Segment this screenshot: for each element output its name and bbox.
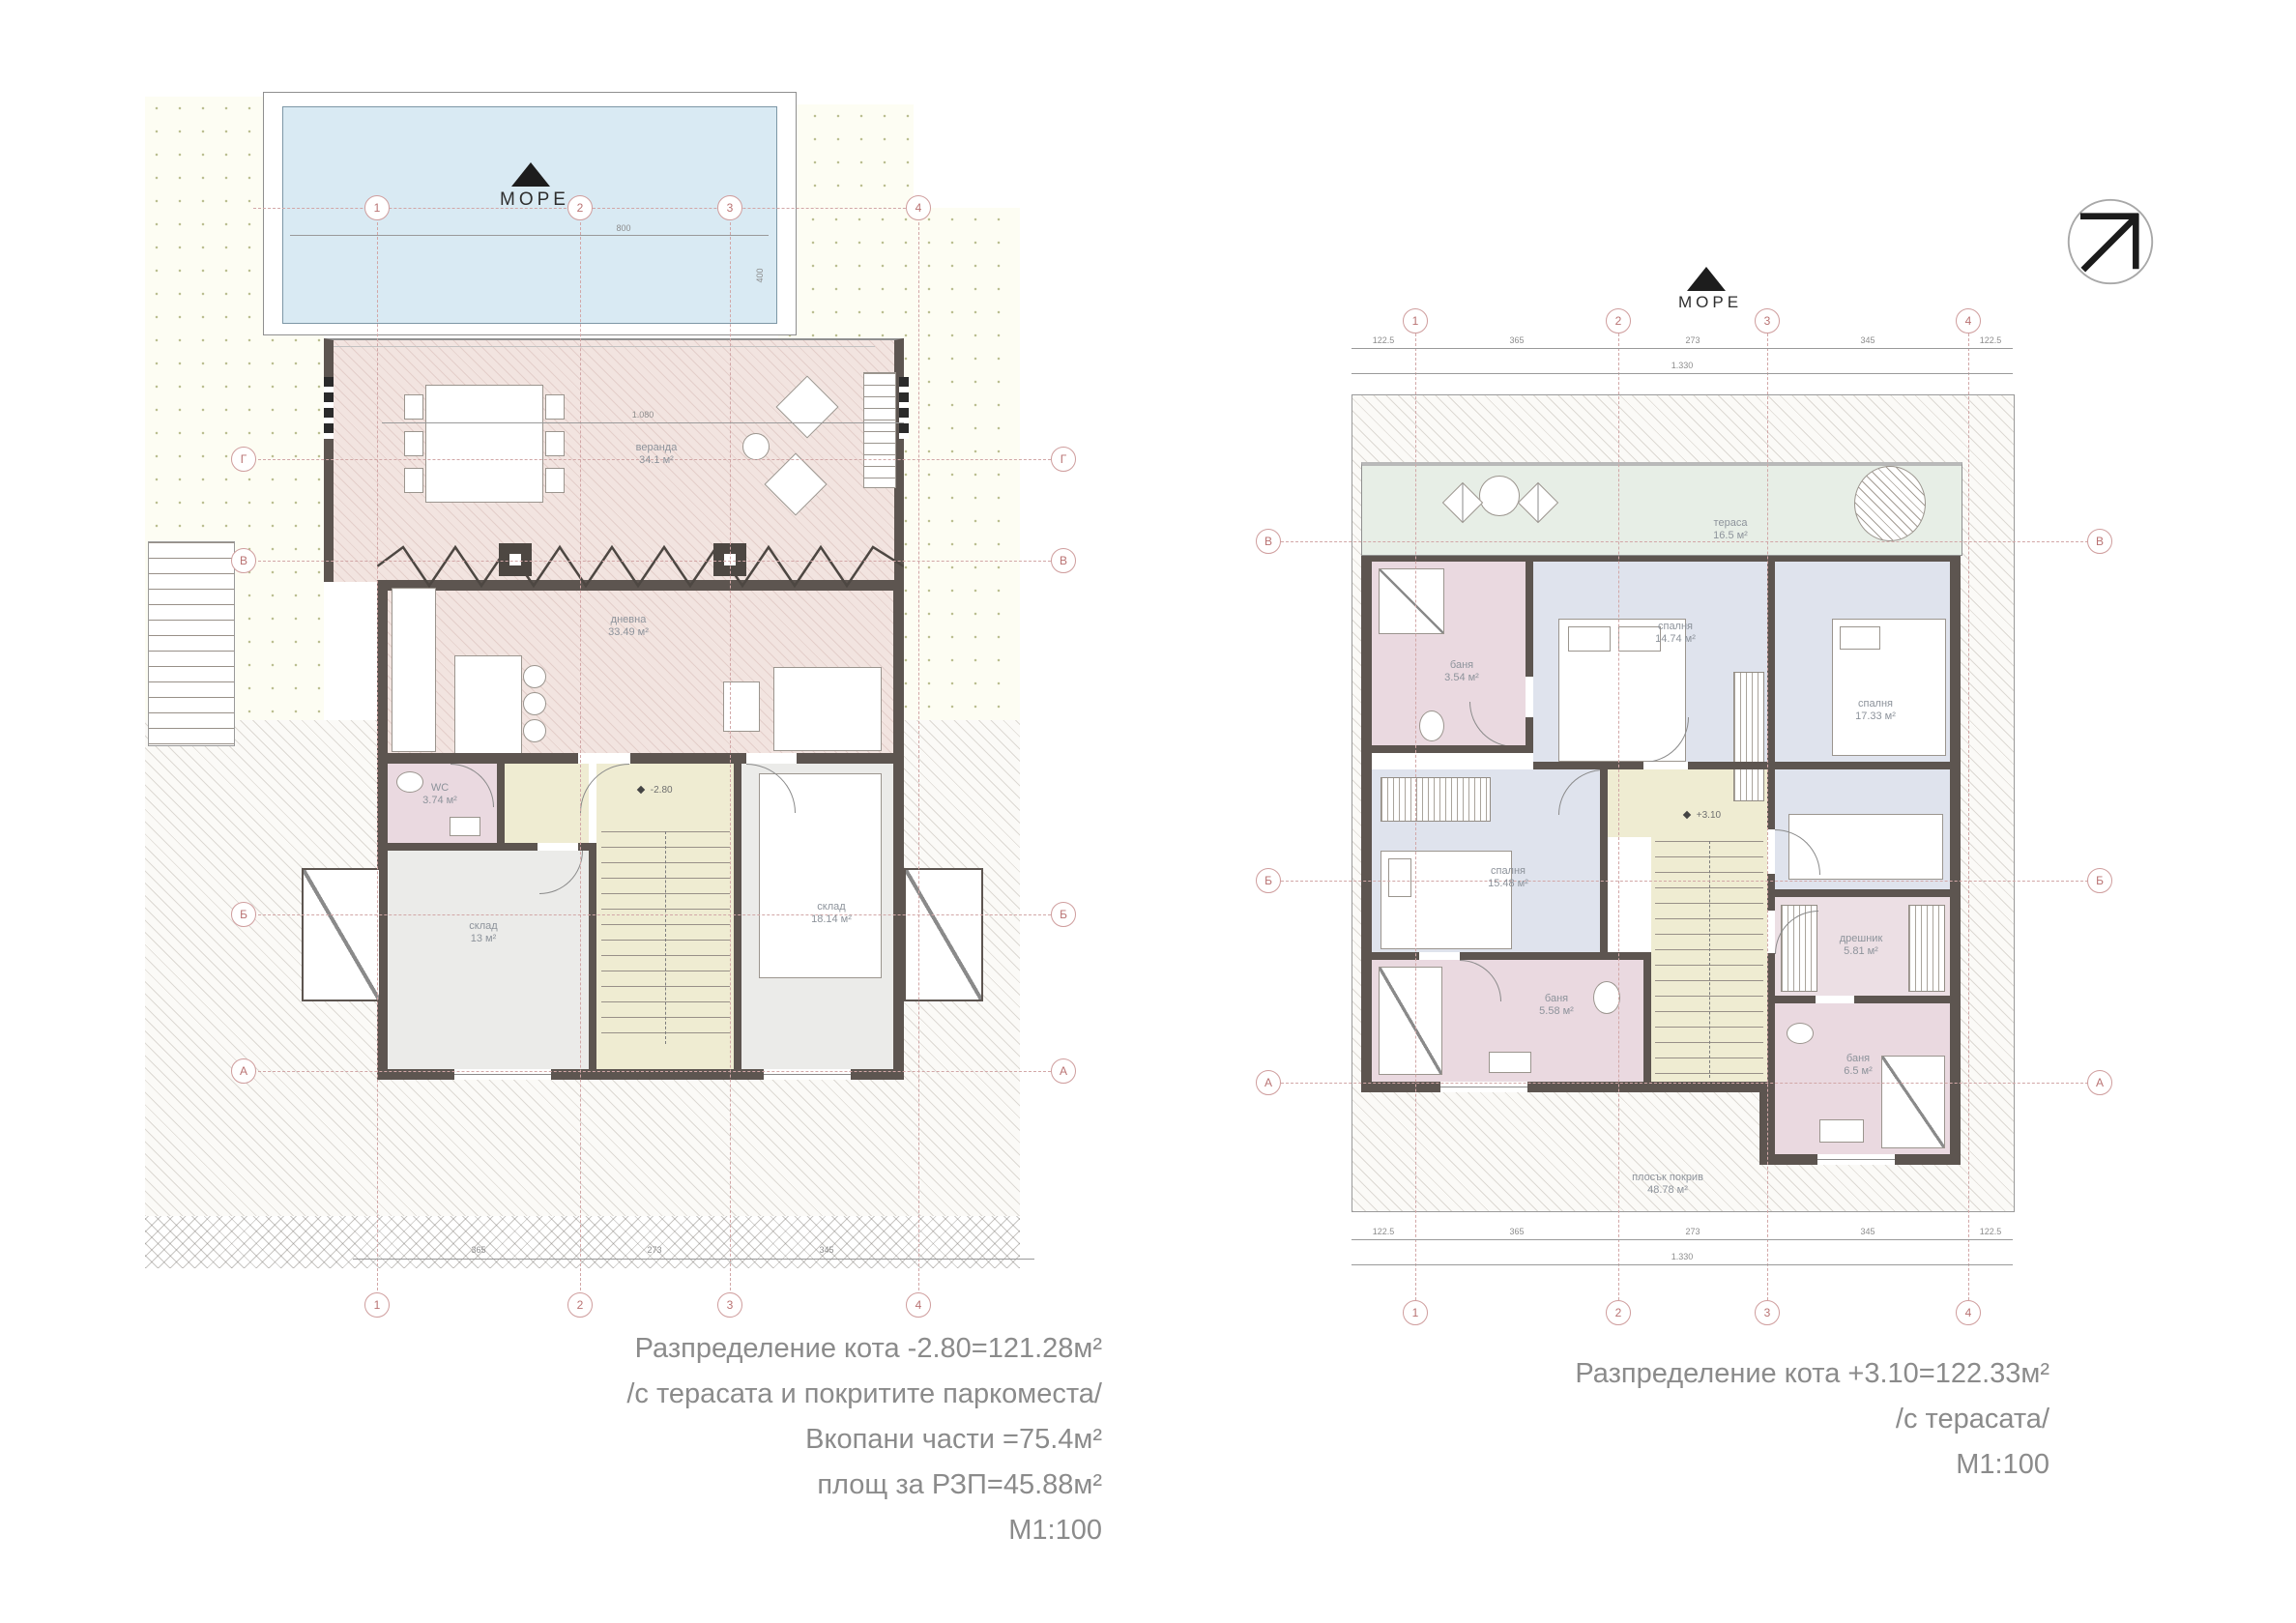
dim-label: 1.330 xyxy=(1671,361,1694,370)
grid-line-b xyxy=(1281,881,2088,882)
caption-line: площ за РЗП=45.88м² xyxy=(416,1463,1102,1508)
door-opening xyxy=(1767,829,1775,874)
grid-bubble-col: 1 xyxy=(1403,1300,1428,1325)
grid-bubble-col: 4 xyxy=(906,195,931,220)
stairs-walkline xyxy=(665,831,666,1044)
grid-line-b xyxy=(253,914,1056,915)
grid-bubble-col: 3 xyxy=(1755,1300,1780,1325)
grid-bubble-row: Г xyxy=(1051,447,1076,472)
pool-water xyxy=(282,106,777,324)
coffee-table xyxy=(723,681,760,732)
dim-label: 345 xyxy=(1860,335,1875,345)
elevation-mark: -2.80 xyxy=(638,785,673,796)
sea-direction-icon xyxy=(511,162,550,187)
grid-line-3 xyxy=(730,222,731,1290)
dim-label: 273 xyxy=(1685,1227,1700,1236)
wall xyxy=(1533,762,1961,769)
dining-chair xyxy=(545,431,565,456)
grid-line-2 xyxy=(1618,333,1619,1305)
grid-bubble-col: 2 xyxy=(567,1292,593,1318)
window-line xyxy=(454,1074,551,1075)
door-opening xyxy=(1643,762,1688,769)
grid-bubble-row: Б xyxy=(2087,868,2112,893)
pool-dim-line xyxy=(290,235,769,236)
grid-bubble-row: В xyxy=(231,548,256,573)
caption-line: /с терасата и покритите паркоместа/ xyxy=(416,1372,1102,1417)
wardrobe-unit xyxy=(1733,672,1764,801)
grid-line-2 xyxy=(580,222,581,1290)
sink xyxy=(1489,1052,1531,1073)
caption-line: Разпределение кота -2.80=121.28м² xyxy=(416,1326,1102,1372)
terrace-railing-line xyxy=(334,346,875,347)
grid-bubble-col: 3 xyxy=(717,1292,742,1318)
terrain-chevron-band xyxy=(145,1216,1020,1268)
kitchen-counter xyxy=(392,588,436,752)
blueprint-page: { "left_plan": { "sea_label": "МОРЕ", "g… xyxy=(0,0,2296,1623)
wall-post xyxy=(499,543,532,576)
room-label-wardrobe: дрешник 5.81 м² xyxy=(1840,933,1883,958)
pool-height-dim: 400 xyxy=(755,268,765,282)
sea-label: МОРЕ xyxy=(500,189,569,211)
hall xyxy=(505,764,589,843)
dim-line xyxy=(1351,348,2013,349)
grid-bubble-col: 4 xyxy=(1956,1300,1981,1325)
toilet xyxy=(1419,710,1444,741)
door-opening xyxy=(1767,911,1775,953)
sink xyxy=(1819,1119,1864,1143)
grid-bubble-row: Б xyxy=(231,902,256,927)
wc-sink xyxy=(450,817,480,836)
dining-chair xyxy=(404,431,423,456)
north-arrow-icon xyxy=(2065,196,2156,287)
door-opening xyxy=(1526,677,1533,717)
grid-bubble-row: А xyxy=(2087,1070,2112,1095)
wall xyxy=(1372,745,1533,753)
room-label-bath-right: баня 6.5 м² xyxy=(1844,1053,1873,1078)
dim-label: 345 xyxy=(819,1245,833,1255)
lower-plan-caption: Разпределение кота -2.80=121.28м² /с тер… xyxy=(416,1326,1102,1553)
grid-bubble-row: Г xyxy=(231,447,256,472)
upper-plan-caption: Разпределение кота +3.10=122.33м² /с тер… xyxy=(1450,1351,2049,1488)
toilet xyxy=(1593,981,1620,1014)
grid-line-v xyxy=(1281,541,2088,542)
room-label-bedroom-right: спалня 17.33 м² xyxy=(1855,698,1896,723)
pillow xyxy=(1568,626,1611,652)
wall xyxy=(734,764,741,1069)
stairs-walkline xyxy=(1709,841,1710,1078)
pool-width-dim: 800 xyxy=(616,223,630,233)
grid-bubble-col: 3 xyxy=(1755,308,1780,333)
grid-bubble-col: 3 xyxy=(717,195,742,220)
shower xyxy=(1379,967,1442,1075)
grid-line-a xyxy=(1281,1083,2088,1084)
dim-label: 122.5 xyxy=(1980,1227,2002,1236)
lightwell-left xyxy=(302,868,381,1001)
caption-line: /с терасата/ xyxy=(1450,1397,2049,1442)
dim-line xyxy=(1351,1239,2013,1240)
elevation-mark: +3.10 xyxy=(1684,810,1721,821)
wardrobe-unit xyxy=(1381,777,1491,822)
exterior-stairs xyxy=(148,541,235,746)
dim-label: 345 xyxy=(1860,1227,1875,1236)
shower xyxy=(1881,1056,1945,1148)
dining-chair xyxy=(545,468,565,493)
terrace-shelf xyxy=(863,372,896,488)
room-label-storage-big: склад 18.14 м² xyxy=(811,901,852,926)
wall xyxy=(1643,960,1651,1082)
lounge-table xyxy=(742,433,770,460)
grid-bubble-col: 1 xyxy=(364,195,390,220)
dim-label: 122.5 xyxy=(1373,335,1395,345)
kitchen-burner xyxy=(523,719,546,742)
room-label-living: дневна 33.49 м² xyxy=(608,614,649,639)
kitchen-burner xyxy=(523,665,546,688)
room-label-bath-top: баня 3.54 м² xyxy=(1444,659,1479,684)
room-label-terrace: веранда 34.1 м² xyxy=(636,442,678,467)
dim-label: 273 xyxy=(1685,335,1700,345)
grid-bubble-col: 1 xyxy=(364,1292,390,1318)
window-line xyxy=(1817,1159,1895,1160)
caption-line: М1:100 xyxy=(1450,1442,2049,1488)
grid-bubble-row: Б xyxy=(1256,868,1281,893)
terrace-window-right xyxy=(899,377,909,439)
sofa xyxy=(773,667,882,751)
shower xyxy=(1379,568,1444,634)
grid-bubble-row: В xyxy=(2087,529,2112,554)
room-label-bedroom-center: спалня 14.74 м² xyxy=(1655,621,1696,646)
door-opening xyxy=(746,753,797,764)
door-opening xyxy=(1419,952,1460,960)
grid-line-a xyxy=(253,1071,1056,1072)
dim-label: 1.330 xyxy=(1671,1252,1694,1261)
grid-bubble-col: 2 xyxy=(1606,308,1631,333)
caption-line: Вкопани части =75.4м² xyxy=(416,1417,1102,1463)
door-opening xyxy=(1816,996,1854,1003)
dim-line xyxy=(353,1259,1034,1260)
grid-line-4 xyxy=(1968,333,1969,1305)
caption-line: Разпределение кота +3.10=122.33м² xyxy=(1450,1351,2049,1397)
sea-direction-icon xyxy=(1687,267,1726,291)
room-label-storage-small: склад 13 м² xyxy=(469,920,497,945)
room-label-bedroom-left: спалня 15.48 м² xyxy=(1488,865,1528,890)
grid-bubble-col: 2 xyxy=(567,195,593,220)
wall xyxy=(1775,889,1950,897)
window-line xyxy=(1440,1087,1527,1087)
dim-label: 365 xyxy=(1509,1227,1524,1236)
door-opening xyxy=(578,753,630,764)
dining-chair xyxy=(404,394,423,420)
accordion-wall xyxy=(377,541,904,592)
dining-chair xyxy=(404,468,423,493)
door-opening xyxy=(538,843,578,851)
dim-line xyxy=(1351,373,2013,374)
pillow xyxy=(1840,626,1880,650)
room-label-flat-roof: плосък покрив 48.78 м² xyxy=(1632,1172,1703,1197)
grid-bubble-row: В xyxy=(1051,548,1076,573)
grid-bubble-col: 2 xyxy=(1606,1300,1631,1325)
dim-label: 122.5 xyxy=(1373,1227,1395,1236)
grid-bubble-row: А xyxy=(231,1058,256,1084)
dim-line xyxy=(382,422,904,423)
wall xyxy=(1526,562,1533,745)
dim-line xyxy=(1351,1264,2013,1265)
grid-line-4 xyxy=(918,222,919,1290)
wall xyxy=(497,764,505,843)
room-label-wc: WC 3.74 м² xyxy=(422,782,457,807)
grid-line-1 xyxy=(377,222,378,1290)
grid-line-3 xyxy=(1767,333,1768,1305)
room-label-terrace: тераса 16.5 м² xyxy=(1713,517,1748,542)
grid-bubble-col: 1 xyxy=(1403,308,1428,333)
dim-label: 365 xyxy=(1509,335,1524,345)
lightwell-right xyxy=(904,868,983,1001)
dining-table xyxy=(425,385,543,503)
terrace-table xyxy=(1479,476,1520,516)
grid-bubble-col: 4 xyxy=(1956,308,1981,333)
wall xyxy=(1775,996,1950,1003)
dim-label: 273 xyxy=(647,1245,661,1255)
hammock-chair xyxy=(1854,466,1926,541)
wc-toilet xyxy=(396,771,423,793)
kitchen-burner xyxy=(523,692,546,715)
wardrobe-unit xyxy=(1908,905,1945,992)
kitchen-island xyxy=(454,655,522,754)
grid-bubble-row: Б xyxy=(1051,902,1076,927)
grid-bubble-row: В xyxy=(1256,529,1281,554)
wall xyxy=(1372,952,1651,960)
dim-label: 365 xyxy=(471,1245,485,1255)
grid-bubble-row: А xyxy=(1051,1058,1076,1084)
pillow xyxy=(1388,858,1411,897)
toilet xyxy=(1787,1023,1814,1044)
dining-chair xyxy=(545,394,565,420)
room-label-bath-left: баня 5.58 м² xyxy=(1539,993,1574,1018)
grid-line-v xyxy=(253,561,1056,562)
grid-bubble-col: 4 xyxy=(906,1292,931,1318)
dim-label: 1.080 xyxy=(632,410,654,420)
grid-line-1 xyxy=(1415,333,1416,1305)
grid-bubble-row: А xyxy=(1256,1070,1281,1095)
terrace-window-left xyxy=(324,377,334,439)
wall xyxy=(589,851,596,1069)
dim-label: 122.5 xyxy=(1980,335,2002,345)
wall xyxy=(1600,769,1608,960)
caption-line: М1:100 xyxy=(416,1508,1102,1553)
sea-label: МОРЕ xyxy=(1678,293,1742,312)
wall xyxy=(377,753,904,764)
window-line xyxy=(764,1074,851,1075)
